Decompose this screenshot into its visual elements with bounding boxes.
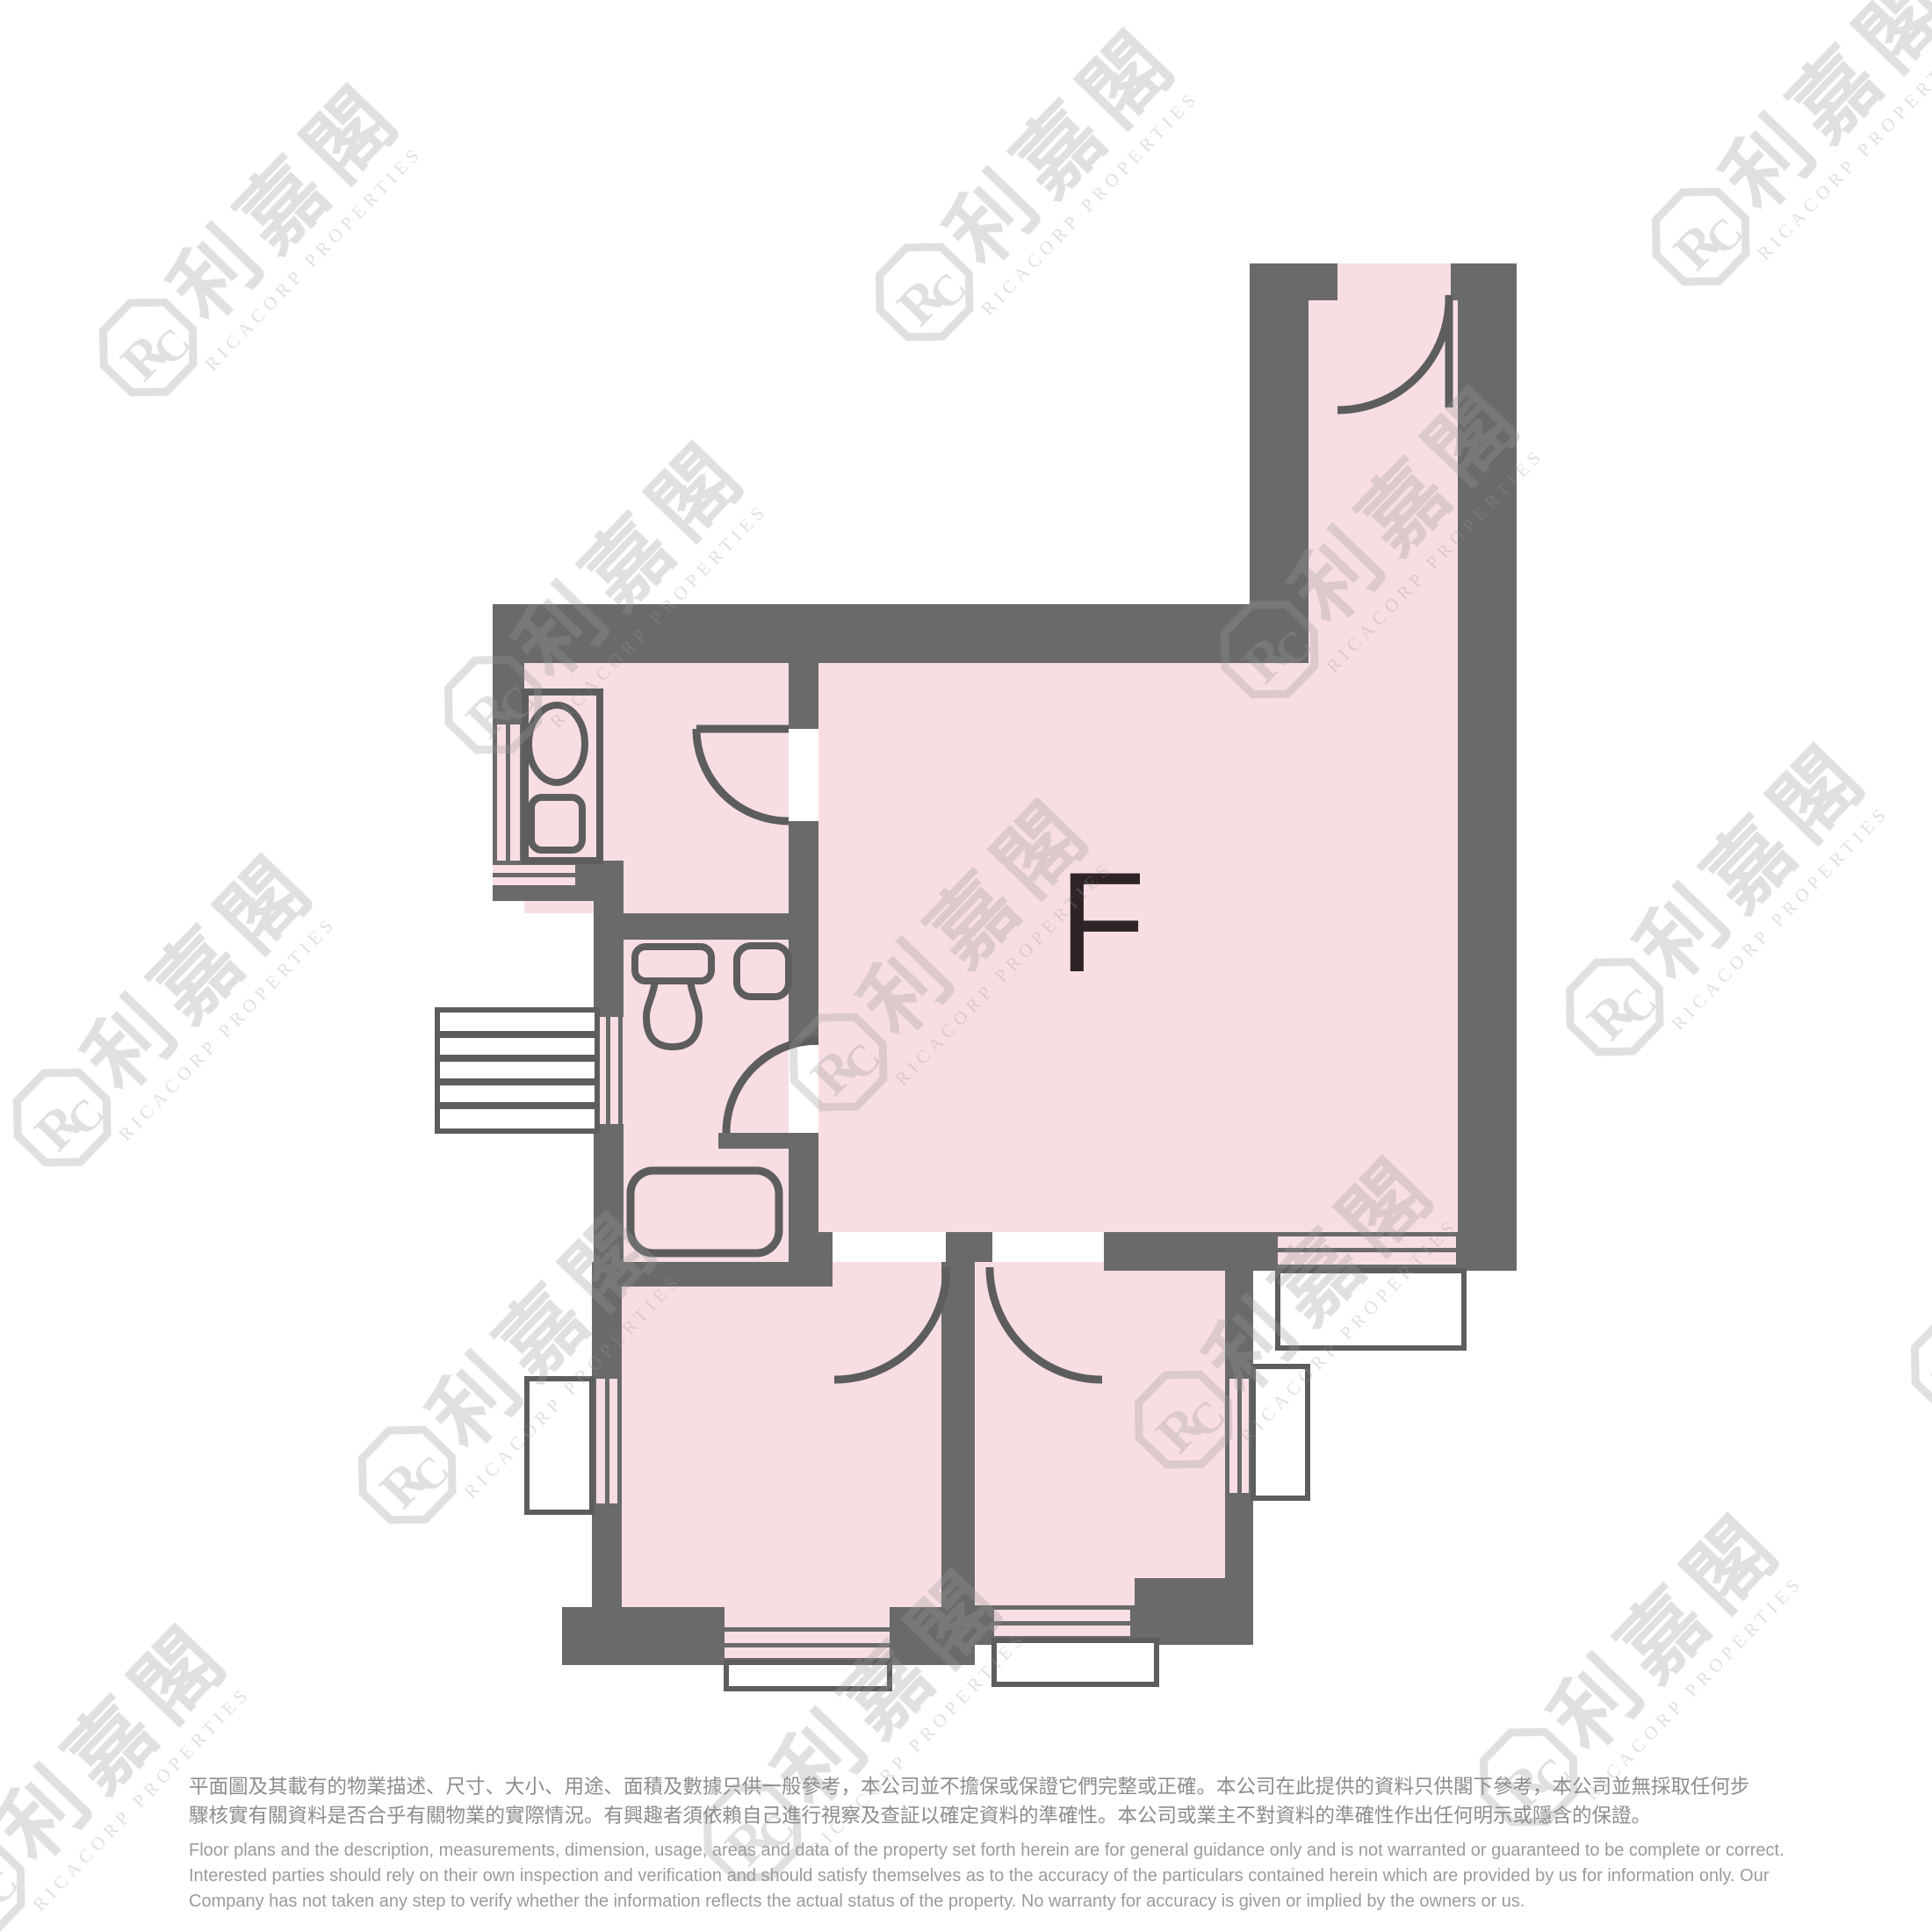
window-box bbox=[1278, 1271, 1464, 1348]
bedroom-left-entry-floor bbox=[833, 1262, 941, 1287]
floorplan-page: F RC利嘉閣RICACORP PROPERTIESRC利嘉閣RICACORP … bbox=[0, 0, 1932, 1932]
disclaimer-zh-line: 驟核實有關資料是否合乎有關物業的實際情況。有興趣者須依賴自己進行視察及查証以確定… bbox=[189, 1801, 1784, 1830]
wall-segment bbox=[789, 663, 818, 729]
bathroom-floor bbox=[624, 940, 789, 1149]
wall-segment bbox=[1308, 263, 1337, 300]
bedroom-left-floor bbox=[622, 1287, 941, 1607]
wall-segment bbox=[718, 1133, 789, 1149]
wall-segment bbox=[575, 861, 624, 890]
wall-segment bbox=[594, 1124, 624, 1262]
disclaimer-en-line: Floor plans and the description, measure… bbox=[189, 1838, 1784, 1864]
wall-segment bbox=[594, 913, 818, 940]
wall-segment bbox=[1456, 1232, 1517, 1271]
window-line bbox=[1278, 1232, 1456, 1236]
louver-frame bbox=[437, 1010, 597, 1131]
wall-segment bbox=[1250, 263, 1308, 604]
window-line bbox=[724, 1627, 890, 1632]
bath-tub-room-floor bbox=[624, 1149, 789, 1262]
wall-segment bbox=[890, 1607, 941, 1665]
wall-segment bbox=[1135, 1578, 1253, 1605]
bedroom-right-notch-floor bbox=[975, 1578, 1135, 1605]
window-line bbox=[724, 1643, 890, 1647]
window-box bbox=[726, 1662, 890, 1689]
wall-segment bbox=[1225, 1271, 1253, 1379]
bedroom-left-bay-floor bbox=[724, 1607, 890, 1627]
window-box bbox=[1253, 1366, 1308, 1498]
window-line bbox=[1225, 1379, 1229, 1493]
bedroom-right-floor bbox=[975, 1262, 1225, 1578]
wall-segment bbox=[789, 1232, 833, 1267]
wall-segment bbox=[493, 604, 1308, 663]
disclaimer-en-line: Company has not taken any step to verify… bbox=[189, 1889, 1784, 1914]
wall-segment bbox=[946, 1232, 992, 1262]
entrance-corridor-floor bbox=[1308, 263, 1458, 663]
window-line bbox=[606, 1017, 610, 1124]
floor-plan bbox=[0, 0, 1932, 1932]
window-line bbox=[994, 1605, 1130, 1610]
wall-segment bbox=[594, 890, 624, 1017]
disclaimer-zh-line: 平面圖及其載有的物業描述、尺寸、大小、用途、面積及數據只供一般參考，本公司並不擔… bbox=[189, 1772, 1784, 1801]
window-line bbox=[994, 1621, 1130, 1626]
window-box bbox=[994, 1640, 1157, 1684]
wall-segment bbox=[493, 604, 524, 724]
wall-segment bbox=[1104, 1232, 1278, 1271]
louver-platform bbox=[437, 1010, 597, 1131]
window-line bbox=[618, 1017, 623, 1124]
window-line bbox=[605, 1379, 609, 1503]
unit-label: F bbox=[1001, 848, 1203, 998]
window-line bbox=[493, 873, 575, 877]
wall-segment bbox=[592, 1262, 622, 1379]
window-line bbox=[493, 885, 575, 890]
wall-segment bbox=[562, 1607, 724, 1665]
window-line bbox=[617, 1379, 622, 1503]
disclaimer: 平面圖及其載有的物業描述、尺寸、大小、用途、面積及數據只供一般參考，本公司並不擔… bbox=[189, 1772, 1784, 1914]
window-line bbox=[1237, 1379, 1242, 1493]
disclaimer-en: Floor plans and the description, measure… bbox=[189, 1838, 1784, 1914]
window-box bbox=[527, 1379, 592, 1512]
wall-segment bbox=[941, 1262, 975, 1665]
wall-segment bbox=[1458, 263, 1517, 1271]
window-line bbox=[1278, 1248, 1456, 1252]
disclaimer-en-line: Interested parties should rely on their … bbox=[189, 1864, 1784, 1889]
wall-segment bbox=[975, 1605, 994, 1645]
wall-segment bbox=[592, 1503, 622, 1607]
